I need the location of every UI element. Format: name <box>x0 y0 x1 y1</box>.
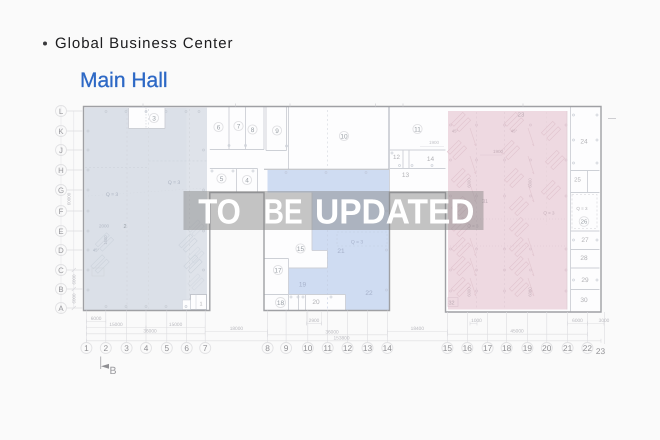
svg-text:J: J <box>59 146 63 155</box>
svg-text:17: 17 <box>483 343 493 353</box>
svg-text:25: 25 <box>574 177 581 184</box>
svg-text:45000: 45000 <box>510 329 524 335</box>
svg-text:Q = 3: Q = 3 <box>351 240 364 246</box>
svg-text:11: 11 <box>323 343 332 353</box>
svg-text:4: 4 <box>245 177 249 184</box>
svg-text:1900: 1900 <box>429 140 440 145</box>
svg-text:7: 7 <box>237 123 241 130</box>
svg-text:1: 1 <box>84 343 89 353</box>
svg-text:TO: TO <box>198 193 241 232</box>
svg-text:2: 2 <box>123 224 126 230</box>
svg-text:5: 5 <box>220 176 224 183</box>
svg-text:18: 18 <box>502 343 512 353</box>
svg-text:45°: 45° <box>93 248 100 253</box>
svg-text:15000: 15000 <box>109 322 123 328</box>
svg-text:60000: 60000 <box>67 192 72 205</box>
svg-text:C: C <box>58 266 64 275</box>
svg-text:15: 15 <box>297 246 305 253</box>
svg-text:6000: 6000 <box>572 318 583 324</box>
svg-text:14: 14 <box>383 343 393 353</box>
svg-text:23: 23 <box>596 346 606 356</box>
svg-text:18000: 18000 <box>230 326 244 332</box>
svg-text:23: 23 <box>518 112 525 119</box>
svg-text:6000: 6000 <box>467 287 472 297</box>
svg-text:Q = 3: Q = 3 <box>106 192 119 198</box>
svg-text:1900: 1900 <box>493 149 504 154</box>
svg-text:BE: BE <box>264 193 303 232</box>
svg-text:153800: 153800 <box>333 335 349 341</box>
svg-text:11: 11 <box>414 126 421 133</box>
svg-text:36000: 36000 <box>143 328 157 334</box>
svg-text:26: 26 <box>581 219 588 226</box>
svg-text:18: 18 <box>277 300 285 307</box>
svg-text:19: 19 <box>523 343 533 353</box>
svg-text:21: 21 <box>563 343 573 353</box>
svg-text:6000: 6000 <box>467 178 472 188</box>
svg-text:9: 9 <box>275 128 279 135</box>
svg-text:22: 22 <box>365 290 373 297</box>
svg-text:L: L <box>59 107 64 116</box>
svg-text:4: 4 <box>144 343 149 353</box>
svg-text:9: 9 <box>284 343 289 353</box>
svg-text:18400: 18400 <box>411 326 425 332</box>
svg-text:12: 12 <box>393 154 400 161</box>
svg-text:A: A <box>58 304 64 313</box>
svg-text:K: K <box>58 127 64 136</box>
svg-text:1500: 1500 <box>103 235 108 245</box>
svg-text:6000: 6000 <box>91 316 102 322</box>
svg-text:16: 16 <box>463 343 473 353</box>
svg-text:7: 7 <box>203 343 208 353</box>
svg-text:10: 10 <box>303 343 313 353</box>
svg-text:B: B <box>58 285 63 294</box>
svg-text:5: 5 <box>164 343 169 353</box>
svg-text:2000: 2000 <box>99 224 110 229</box>
svg-text:UPDATED: UPDATED <box>315 193 475 232</box>
svg-text:15000: 15000 <box>169 322 183 328</box>
svg-text:E: E <box>58 227 63 236</box>
svg-text:45°: 45° <box>452 129 459 134</box>
svg-text:8: 8 <box>251 127 255 134</box>
svg-text:3: 3 <box>124 343 129 353</box>
svg-text:10: 10 <box>340 133 348 140</box>
svg-text:D: D <box>58 246 64 255</box>
svg-text:H: H <box>58 166 64 175</box>
svg-text:6000: 6000 <box>72 274 77 285</box>
svg-text:29: 29 <box>581 277 589 284</box>
svg-text:13: 13 <box>402 172 410 179</box>
svg-text:2: 2 <box>103 343 108 353</box>
svg-text:20: 20 <box>542 343 552 353</box>
svg-text:8: 8 <box>265 343 270 353</box>
svg-text:17: 17 <box>274 267 282 274</box>
svg-text:19: 19 <box>299 282 307 289</box>
svg-text:28: 28 <box>580 255 588 262</box>
svg-text:20: 20 <box>312 299 320 306</box>
svg-text:24: 24 <box>580 139 588 146</box>
svg-text:30: 30 <box>580 297 588 304</box>
svg-text:45°: 45° <box>511 129 518 134</box>
svg-text:32: 32 <box>448 301 454 307</box>
svg-text:1000: 1000 <box>471 318 482 324</box>
svg-text:21: 21 <box>337 248 345 255</box>
svg-text:3: 3 <box>152 115 156 122</box>
svg-text:22: 22 <box>583 343 593 353</box>
svg-text:Q = 3: Q = 3 <box>168 180 181 186</box>
svg-text:Main Hall: Main Hall <box>80 69 168 92</box>
svg-text:2900: 2900 <box>309 318 320 324</box>
svg-text:1: 1 <box>199 302 202 308</box>
svg-text:6000: 6000 <box>72 293 77 304</box>
svg-text:G: G <box>58 186 64 195</box>
svg-text:6000: 6000 <box>528 178 533 188</box>
svg-text:14: 14 <box>427 156 435 163</box>
svg-text:Global Business Center: Global Business Center <box>55 35 233 52</box>
svg-text:Q = 3: Q = 3 <box>576 206 588 211</box>
svg-text:27: 27 <box>581 237 589 244</box>
svg-text:6: 6 <box>217 124 221 131</box>
svg-text:36000: 36000 <box>325 329 339 335</box>
svg-text:6: 6 <box>184 343 189 353</box>
svg-text:3000: 3000 <box>599 318 610 324</box>
svg-text:B: B <box>109 365 116 377</box>
svg-text:15: 15 <box>443 343 453 353</box>
svg-text:F: F <box>59 207 64 216</box>
svg-text:12: 12 <box>343 343 353 353</box>
svg-text:13: 13 <box>363 343 373 353</box>
svg-text:Q = 3: Q = 3 <box>543 211 555 216</box>
svg-text:6000: 6000 <box>528 287 533 297</box>
